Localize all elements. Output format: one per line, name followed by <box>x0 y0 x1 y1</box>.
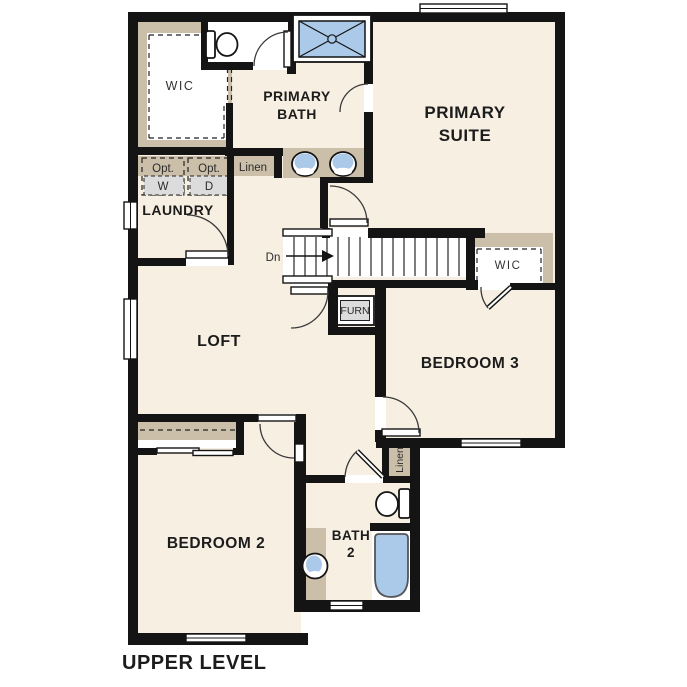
bath2-label-1: BATH <box>332 528 371 543</box>
sink <box>303 554 328 579</box>
shower <box>293 15 371 62</box>
opt-dryer-caption: Opt. <box>198 163 220 175</box>
linen-upper-label: Linen <box>239 162 267 174</box>
bedroom2-closet-front <box>138 440 236 448</box>
window <box>186 634 246 642</box>
stair-rail <box>283 276 332 283</box>
stairs-down-label: Dn <box>266 252 281 264</box>
window <box>124 202 137 229</box>
laundry-label: LAUNDRY <box>142 202 214 218</box>
window <box>330 601 363 610</box>
primary-bath-label-2: BATH <box>277 106 317 122</box>
sink <box>330 152 356 176</box>
bathtub <box>375 534 408 597</box>
plan-title: UPPER LEVEL <box>122 652 266 674</box>
window <box>124 299 137 359</box>
floor-plan-canvas: WIC PRIMARY BATH PRIMARY SUITE Opt. W Op… <box>0 0 687 687</box>
upper-level-floor-plan: WIC PRIMARY BATH PRIMARY SUITE Opt. W Op… <box>0 0 687 687</box>
window <box>420 4 507 13</box>
primary-bath-label-1: PRIMARY <box>263 88 331 104</box>
stair-rail <box>283 229 332 236</box>
bath2-label-2: 2 <box>347 545 355 560</box>
linen-lower-label: Linen <box>394 447 406 473</box>
primary-suite-label-2: SUITE <box>439 126 492 145</box>
opt-washer-caption: Opt. <box>152 163 174 175</box>
primary-suite-label-1: PRIMARY <box>424 103 505 122</box>
bedroom2-label: BEDROOM 2 <box>167 535 265 552</box>
toilet <box>206 31 238 58</box>
toilet <box>376 489 410 518</box>
wic-right-label: WIC <box>495 260 522 272</box>
wall-jamb <box>295 444 304 462</box>
furnace-label: FURN <box>340 305 369 317</box>
loft-label: LOFT <box>197 333 241 350</box>
window <box>461 439 521 447</box>
bedroom3-label: BEDROOM 3 <box>421 355 519 372</box>
wic-left-label: WIC <box>166 79 195 93</box>
washer-label: W <box>158 181 169 193</box>
sink <box>292 152 318 176</box>
dryer-label: D <box>205 181 213 193</box>
